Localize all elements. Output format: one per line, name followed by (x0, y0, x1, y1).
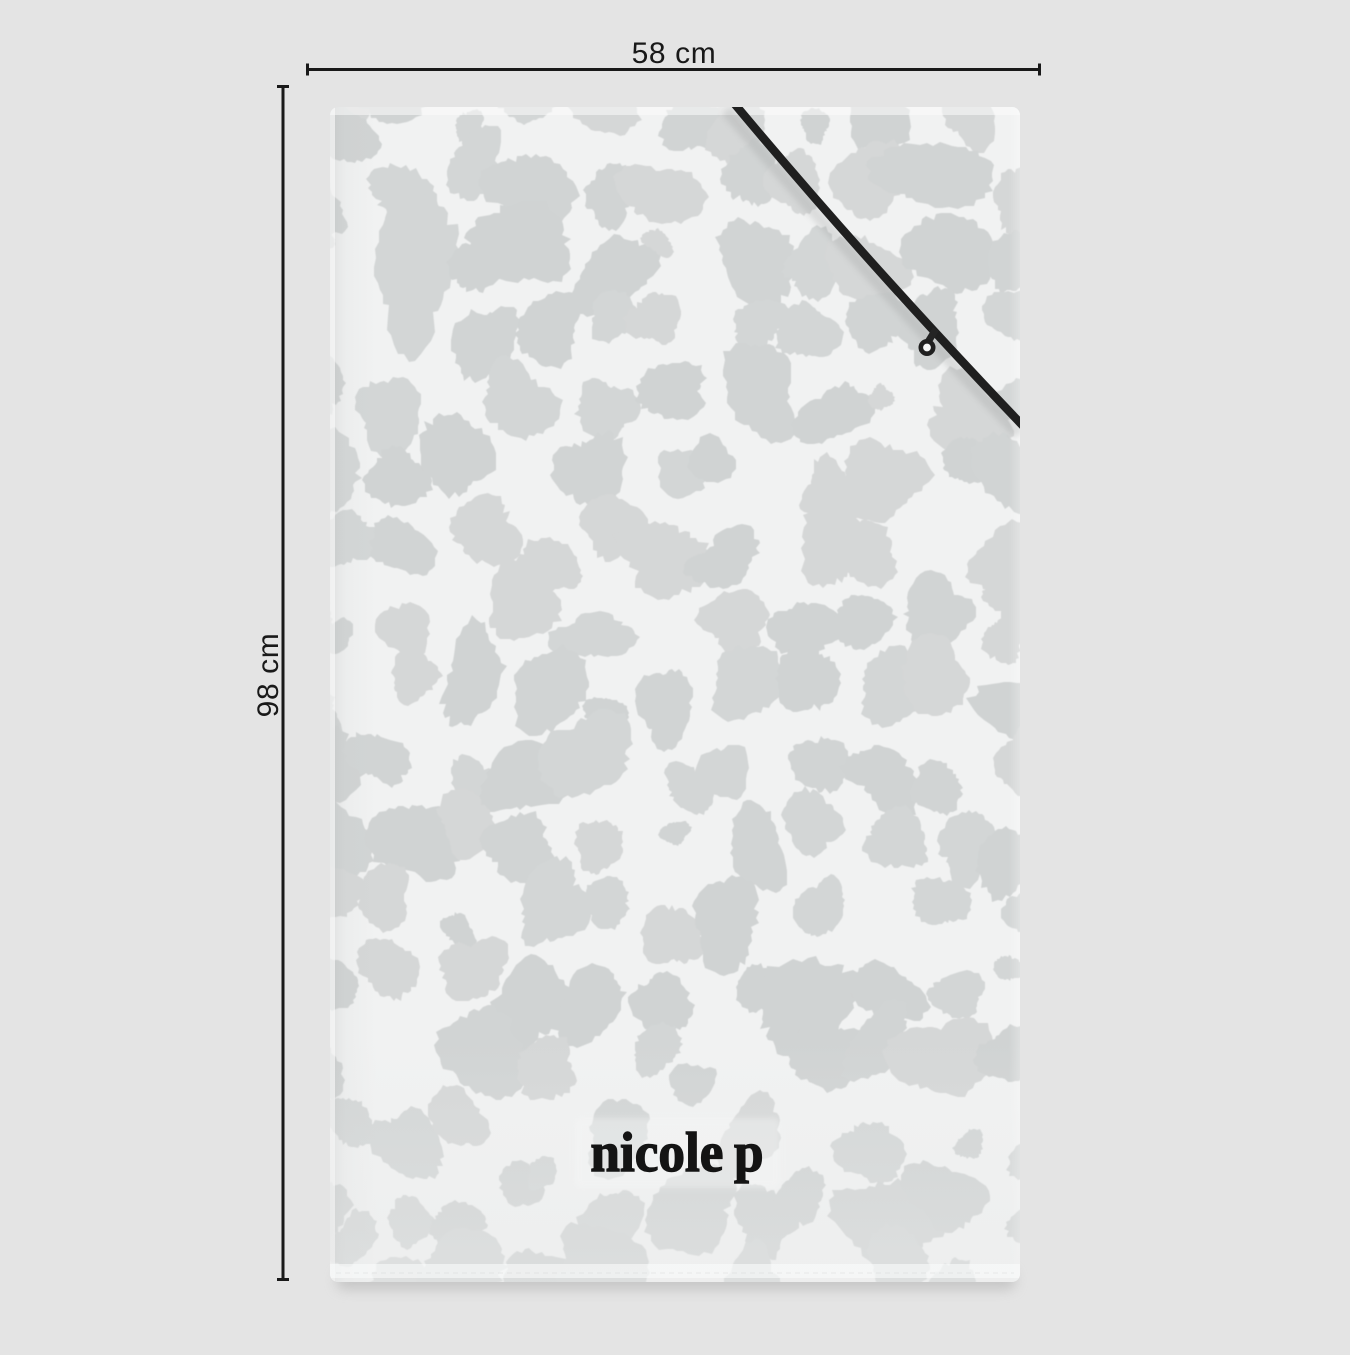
svg-text:98 cm: 98 cm (252, 633, 285, 718)
svg-text:nicole p: nicole p (590, 1121, 763, 1184)
svg-text:58 cm: 58 cm (632, 37, 717, 70)
